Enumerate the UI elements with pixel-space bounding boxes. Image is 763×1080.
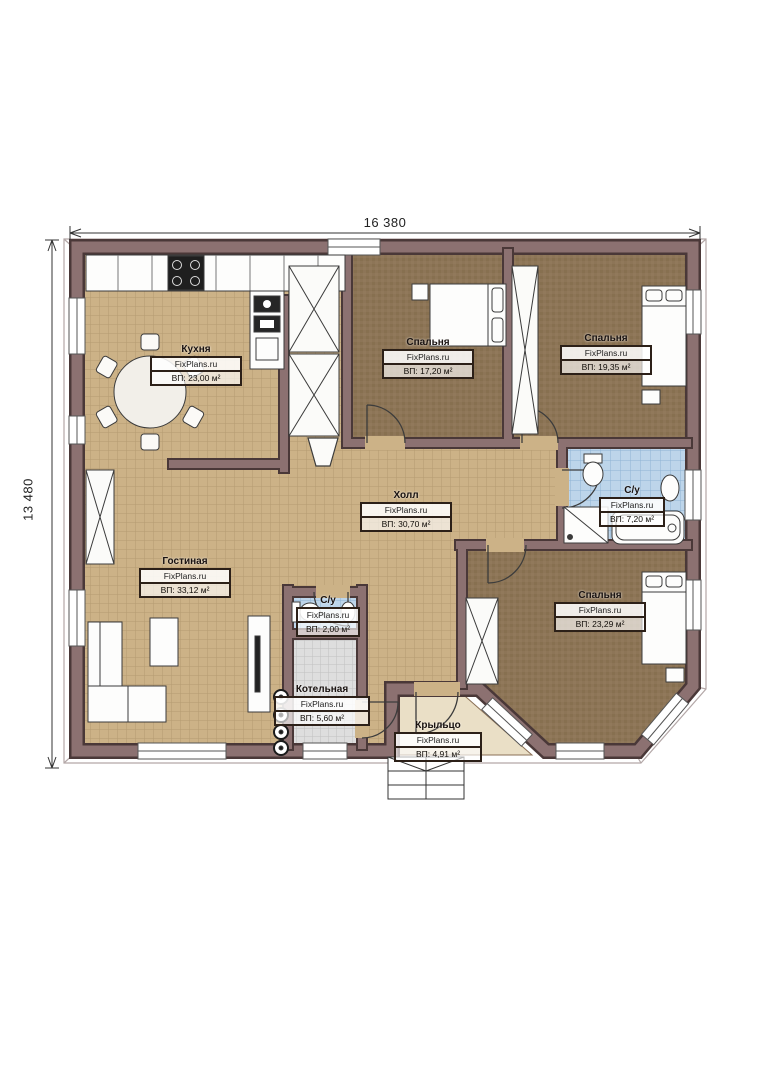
- left-small-window: [69, 416, 85, 444]
- room-label-bathroom: С/у FixPlans.ru ВП: 7,20 м²: [599, 485, 665, 527]
- watermark: FixPlans.ru: [276, 698, 368, 712]
- living-window-bottom: [138, 743, 226, 759]
- room-area: ВП: 17,20 м²: [384, 365, 472, 377]
- kitchen-sink-icon: [254, 296, 280, 360]
- top-window: [328, 239, 380, 255]
- watermark: FixPlans.ru: [556, 604, 644, 618]
- watermark: FixPlans.ru: [396, 734, 480, 748]
- watermark: FixPlans.ru: [141, 570, 229, 584]
- room-label-hall: Холл FixPlans.ru ВП: 30,70 м²: [360, 490, 452, 532]
- bedroom-3-window: [685, 580, 701, 630]
- room-label-bedroom-3: Спальня FixPlans.ru ВП: 23,29 м²: [554, 590, 646, 632]
- room-area: ВП: 5,60 м²: [276, 712, 368, 724]
- room-name: Спальня: [382, 337, 474, 348]
- room-name: С/у: [296, 595, 360, 606]
- room-area: ВП: 33,12 м²: [141, 584, 229, 596]
- wardrobe-icon: [289, 266, 339, 352]
- wardrobe-icon: [466, 598, 498, 684]
- room-area: ВП: 30,70 м²: [362, 518, 450, 530]
- room-label-wc: С/у FixPlans.ru ВП: 2,00 м²: [296, 595, 360, 637]
- watermark: FixPlans.ru: [362, 504, 450, 518]
- room-name: Крыльцо: [394, 720, 482, 731]
- watermark: FixPlans.ru: [562, 347, 650, 361]
- bay-bottom-window: [556, 743, 604, 759]
- room-name: Холл: [360, 490, 452, 501]
- dimension-height-label: 13 480: [21, 458, 36, 542]
- room-area: ВП: 7,20 м²: [601, 513, 663, 525]
- watermark: FixPlans.ru: [152, 358, 240, 372]
- room-label-boiler-room: Котельная FixPlans.ru ВП: 5,60 м²: [274, 684, 370, 726]
- floor-plan: [0, 0, 763, 1080]
- kitchen-window: [69, 298, 85, 354]
- toilet-icon: [583, 454, 603, 486]
- room-area: ВП: 2,00 м²: [298, 623, 358, 635]
- room-area: ВП: 23,00 м²: [152, 372, 240, 384]
- room-name: Спальня: [554, 590, 646, 601]
- stove-icon: [168, 256, 204, 290]
- wardrobe-icon: [512, 266, 538, 434]
- watermark: FixPlans.ru: [298, 609, 358, 623]
- dimension-height-line: [45, 240, 59, 768]
- room-label-living-room: Гостиная FixPlans.ru ВП: 33,12 м²: [139, 556, 231, 598]
- room-name: Котельная: [274, 684, 370, 695]
- floor-plan-page: 16 380 13 480 Кухня FixPlans.ru ВП: 23,0…: [0, 0, 763, 1080]
- room-label-kitchen: Кухня FixPlans.ru ВП: 23,00 м²: [150, 344, 242, 386]
- room-name: С/у: [599, 485, 665, 496]
- room-name: Гостиная: [139, 556, 231, 567]
- bedroom-2-window: [685, 290, 701, 334]
- watermark: FixPlans.ru: [384, 351, 472, 365]
- watermark: FixPlans.ru: [601, 499, 663, 513]
- living-window-left: [69, 590, 85, 646]
- room-label-porch: Крыльцо FixPlans.ru ВП: 4,91 м²: [394, 720, 482, 762]
- room-area: ВП: 4,91 м²: [396, 748, 480, 760]
- coffee-table-icon: [150, 618, 178, 666]
- entrance-steps: [388, 757, 464, 799]
- boiler-window: [303, 743, 347, 759]
- room-area: ВП: 23,29 м²: [556, 618, 644, 630]
- room-label-bedroom-2: Спальня FixPlans.ru ВП: 19,35 м²: [560, 333, 652, 375]
- wardrobe-icon: [86, 470, 114, 564]
- dimension-width-label: 16 380: [70, 215, 700, 230]
- room-area: ВП: 19,35 м²: [562, 361, 650, 373]
- room-name: Спальня: [560, 333, 652, 344]
- tv-stand-icon: [248, 616, 270, 712]
- room-name: Кухня: [150, 344, 242, 355]
- wardrobe-icon: [289, 354, 339, 436]
- room-label-bedroom-1: Спальня FixPlans.ru ВП: 17,20 м²: [382, 337, 474, 379]
- bathroom-window: [685, 470, 701, 520]
